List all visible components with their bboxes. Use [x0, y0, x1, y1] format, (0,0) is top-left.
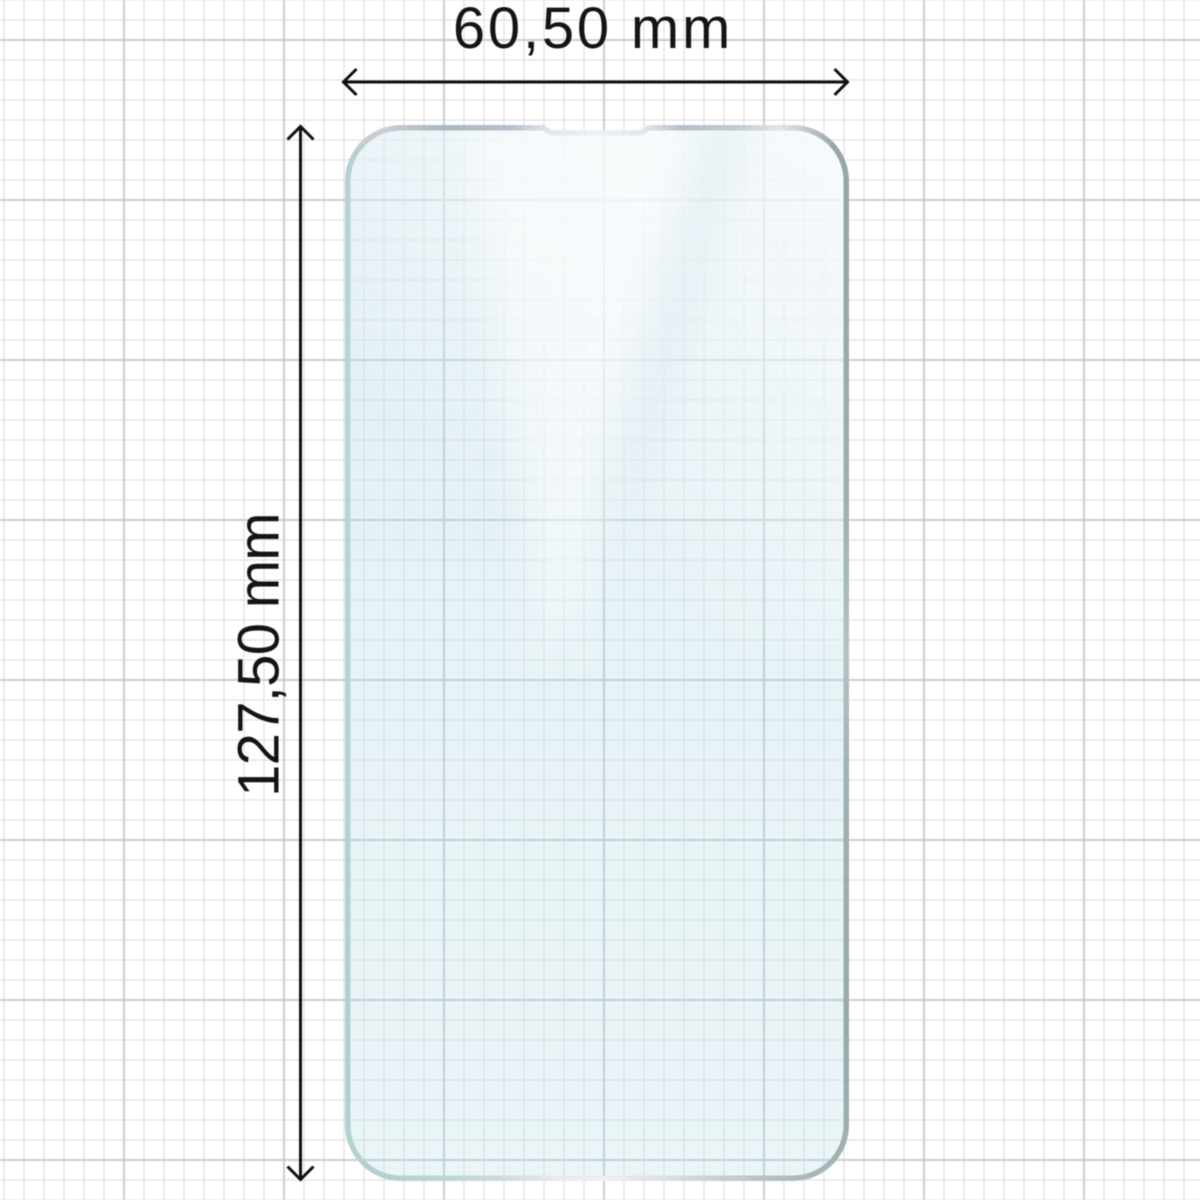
svg-text:127,50 mm: 127,50 mm: [227, 513, 292, 797]
svg-text:60,50 mm: 60,50 mm: [453, 0, 733, 61]
